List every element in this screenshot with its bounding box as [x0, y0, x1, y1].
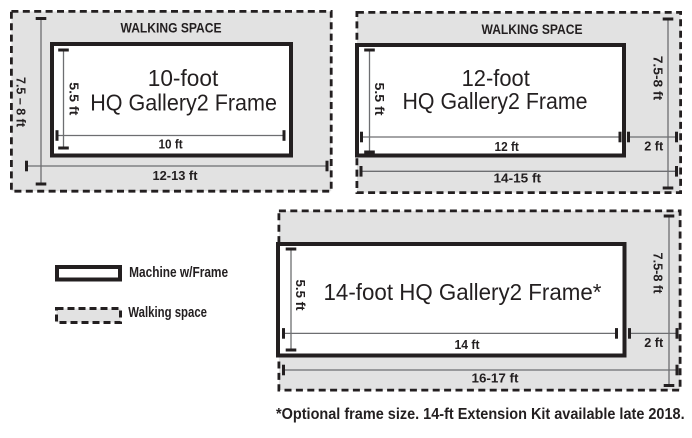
svg-text:*Optional frame size. 14-ft Ex: *Optional frame size. 14-ft Extension Ki…: [276, 406, 685, 423]
svg-text:7.5 – 8 ft: 7.5 – 8 ft: [13, 77, 28, 128]
svg-text:14 ft: 14 ft: [455, 337, 481, 352]
svg-text:16-17 ft: 16-17 ft: [472, 371, 520, 386]
svg-text:12-13 ft: 12-13 ft: [153, 168, 199, 183]
svg-text:7.5-8 ft: 7.5-8 ft: [651, 253, 666, 295]
svg-text:5.5 ft: 5.5 ft: [293, 280, 308, 312]
svg-text:WALKING SPACE: WALKING SPACE: [482, 22, 583, 37]
svg-text:5.5 ft: 5.5 ft: [67, 82, 82, 116]
svg-text:14-foot HQ Gallery2 Frame*: 14-foot HQ Gallery2 Frame*: [324, 279, 602, 305]
svg-text:12 ft: 12 ft: [495, 139, 520, 154]
svg-text:12-foot: 12-foot: [462, 65, 531, 91]
svg-text:HQ Gallery2 Frame: HQ Gallery2 Frame: [90, 89, 277, 115]
svg-text:10 ft: 10 ft: [159, 137, 184, 152]
svg-text:2 ft: 2 ft: [644, 335, 664, 350]
svg-text:5.5 ft: 5.5 ft: [372, 83, 387, 117]
svg-text:WALKING SPACE: WALKING SPACE: [121, 20, 222, 35]
svg-text:Machine w/Frame: Machine w/Frame: [129, 264, 228, 281]
svg-text:Walking space: Walking space: [128, 304, 207, 321]
svg-text:7.5-8 ft: 7.5-8 ft: [651, 56, 666, 101]
svg-text:14-15 ft: 14-15 ft: [494, 171, 542, 186]
svg-text:2 ft: 2 ft: [644, 139, 664, 154]
svg-text:10-foot: 10-foot: [148, 65, 219, 91]
svg-text:HQ Gallery2 Frame: HQ Gallery2 Frame: [403, 88, 588, 114]
